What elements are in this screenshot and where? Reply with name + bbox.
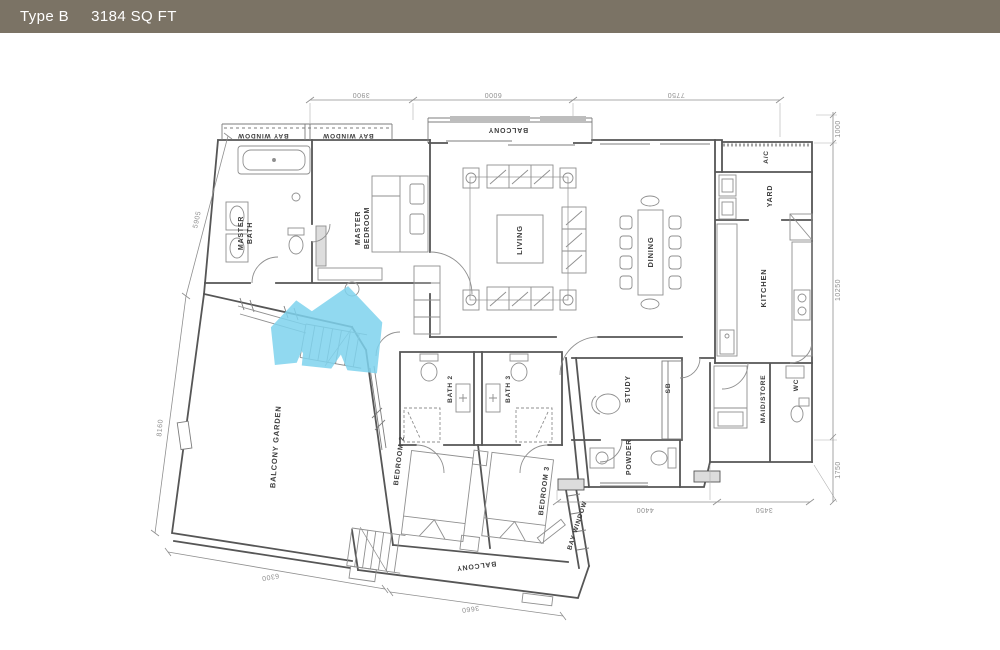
room-label-dining: DINING [646,236,655,267]
dim-right-10250: 10250 [835,279,842,301]
dim-top-7750: 7750 [667,91,685,98]
room-label-kitchen: KITCHEN [759,269,768,308]
room-label-sb: SB [665,383,672,394]
unit-area-label: 3184 SQ FT [91,8,177,25]
walls [172,140,812,598]
unit-type-label: Type B [20,8,69,25]
twin-house-logo [268,282,385,373]
bed [401,451,473,542]
room-label-maid-store: MAID/STORE [760,375,767,424]
room-label-bath2: BATH 2 [447,375,454,403]
toilet [421,363,437,381]
room-label-bedroom3: BEDROOM 3 [538,466,551,516]
room-label-master-bedroom-line1: MASTER [355,211,362,245]
desk [596,394,620,414]
room-label-bath3: BATH 3 [505,375,512,403]
dim-bottom-3660: 3660 [461,604,479,613]
room-label-wc: WC [793,379,800,391]
sink [590,448,614,468]
shower [516,408,552,442]
dim-right-1750: 1750 [835,461,842,479]
house-icon [302,282,386,373]
fixtures [226,146,812,606]
room-label-bay-window-right: BAY WINDOW [322,132,373,139]
sink [786,366,804,378]
nightstand [460,535,480,551]
dim-bottom-6300: 6300 [261,572,280,582]
kitchen-counter [792,242,812,356]
dim-top-6000: 6000 [484,91,502,98]
cooktop [794,290,810,320]
dim-right-1000: 1000 [835,120,842,138]
header-bar: Type B 3184 SQ FT [0,0,1000,33]
room-label-ac: A/C [763,150,770,164]
page: Type B 3184 SQ FT [0,0,1000,650]
dim-top-3900: 3900 [352,91,370,98]
floor-plan: BAY WINDOW BAY WINDOW BALCONY MASTER BAT… [0,33,1000,650]
room-label-powder: POWDER [626,439,633,475]
shower [404,408,440,442]
toilet [288,228,304,235]
room-label-balcony-bottom: BALCONY [456,560,497,572]
washer [719,175,736,196]
room-label-bay-window-left: BAY WINDOW [237,132,288,139]
dim-bottomright-4400: 4400 [636,506,654,513]
dim-left-5905: 5905 [192,210,203,229]
room-label-master-bath-line2: BATH [247,222,254,244]
toilet [511,363,527,381]
room-label-study: STUDY [625,375,632,403]
vanity [318,268,382,280]
dim-bottomright-3450: 3450 [755,506,773,513]
toilet [651,451,667,465]
washer [719,198,736,219]
room-label-master-bath-line1: MASTER [238,216,245,250]
dim-left-8160: 8160 [156,419,165,437]
room-label-balcony-garden: BALCONY GARDEN [268,405,283,488]
room-label-master-bedroom-line2: BEDROOM [364,207,371,249]
toilet [791,406,803,422]
room-label-balcony-top: BALCONY [488,126,528,133]
room-label-yard: YARD [767,185,774,207]
room-label-living: LIVING [515,225,524,255]
bed [714,366,747,428]
room-label-bedroom2: BEDROOM 2 [393,436,406,486]
staircase [345,526,406,585]
